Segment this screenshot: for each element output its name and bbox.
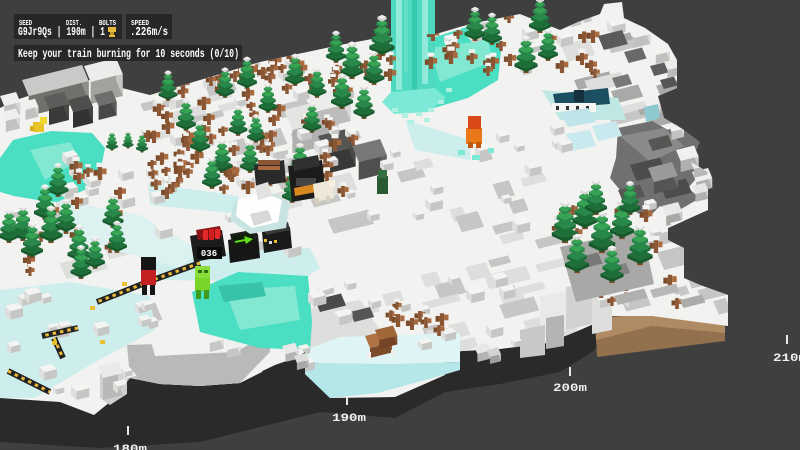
svg-text:036: 036 <box>201 249 217 259</box>
svg-text:200m: 200m <box>553 383 588 395</box>
svg-text:Keep your train burning for 10: Keep your train burning for 10 seconds (… <box>18 47 239 61</box>
svg-text:190m: 190m <box>332 413 367 425</box>
svg-text:180m: 180m <box>113 444 148 450</box>
svg-text:210m: 210m <box>773 353 800 365</box>
svg-text:.226m/s: .226m/s <box>130 25 168 39</box>
svg-text:G9Jr9Qs | 190m | 1: G9Jr9Qs | 190m | 1 <box>18 25 105 39</box>
